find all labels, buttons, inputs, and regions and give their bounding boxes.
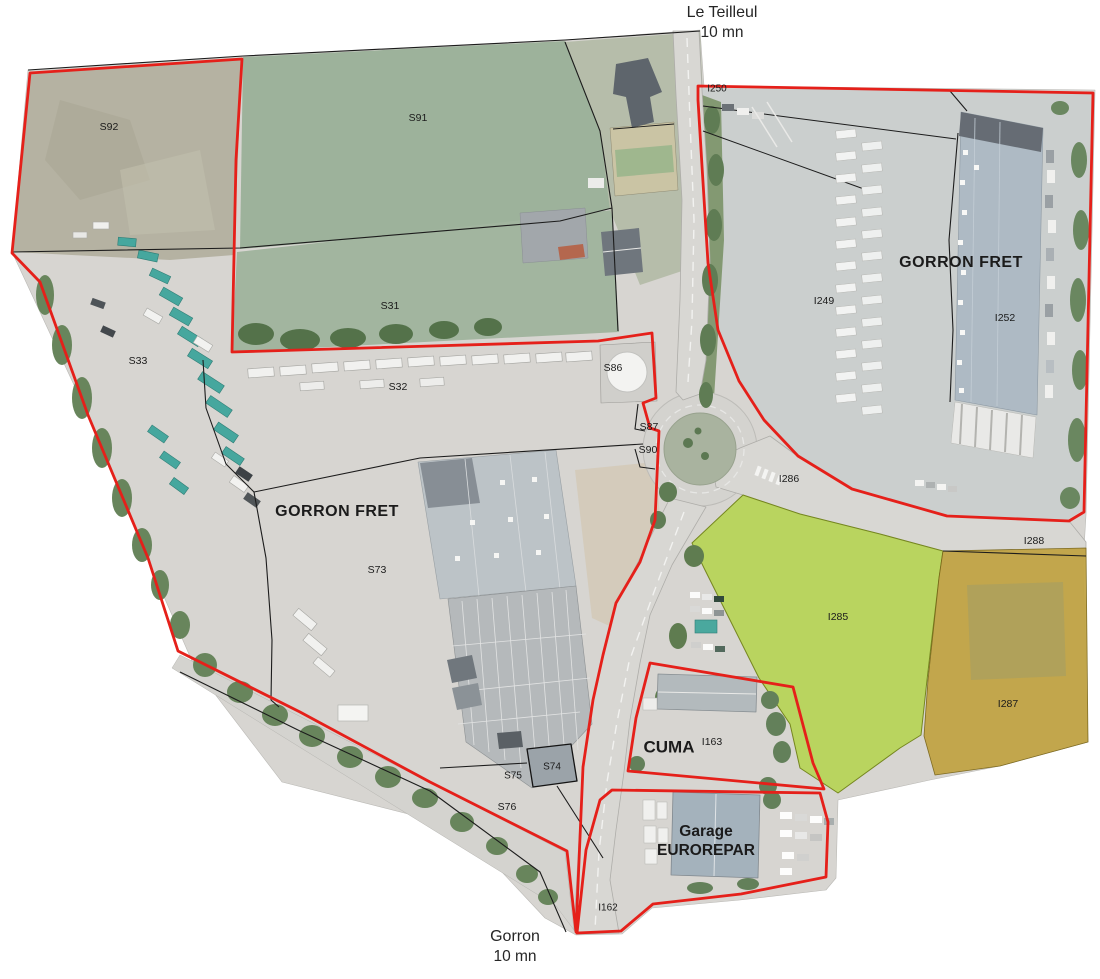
label-i162: I162	[598, 903, 618, 914]
car	[1046, 248, 1054, 261]
car	[948, 486, 957, 492]
roundabout-bush	[695, 428, 702, 435]
car	[795, 814, 807, 821]
label-s76: S76	[498, 801, 517, 813]
direction-label-bottom: Gorron 10 mn	[490, 926, 540, 968]
label-s91: S91	[409, 112, 428, 124]
car	[782, 852, 794, 859]
label-garage-line2: EUROREPAR	[657, 842, 755, 859]
label-gorron-fret-left: GORRON FRET	[275, 503, 399, 520]
rooflight	[500, 480, 505, 485]
shed-teal	[695, 620, 717, 633]
truck	[657, 802, 667, 819]
tree	[1071, 142, 1087, 178]
aerial-site-plan: S92S91S31S33S32S86S87S90GORRON FRETS73S7…	[0, 0, 1100, 979]
annex-shed	[447, 655, 477, 683]
car	[780, 868, 792, 875]
warehouse-left-dark-corner	[420, 458, 480, 508]
tree	[429, 321, 459, 339]
truck	[644, 826, 656, 843]
tree	[375, 766, 401, 788]
direction-bottom-name: Gorron	[490, 926, 540, 947]
label-i249: I249	[814, 295, 835, 307]
car	[1045, 304, 1053, 317]
car	[1047, 332, 1055, 345]
rooflight	[455, 556, 460, 561]
tree	[761, 691, 779, 709]
roundabout-bush	[683, 438, 693, 448]
tree	[474, 318, 502, 336]
tree	[706, 209, 722, 241]
car	[691, 642, 701, 648]
tree	[699, 382, 713, 408]
truck	[360, 379, 384, 389]
tree	[379, 324, 413, 344]
rooflight	[974, 165, 979, 170]
farm-white-building	[588, 178, 604, 188]
label-s73: S73	[368, 564, 387, 576]
tree	[684, 545, 704, 567]
car	[937, 484, 946, 490]
truck	[504, 353, 531, 364]
tree	[1073, 210, 1089, 250]
tree	[773, 741, 791, 763]
label-s86: S86	[604, 362, 623, 374]
rooflight	[963, 150, 968, 155]
car	[1047, 276, 1055, 289]
car	[780, 830, 792, 837]
car	[1046, 150, 1054, 163]
rooflight	[962, 210, 967, 215]
tree	[700, 324, 716, 356]
label-s92: S92	[100, 121, 119, 133]
rooflight	[494, 553, 499, 558]
car	[703, 644, 713, 650]
car	[714, 596, 724, 602]
rooflight	[959, 388, 964, 393]
car	[810, 834, 822, 841]
parcel-i287-inner-square	[967, 582, 1066, 680]
tree	[704, 106, 720, 134]
truck	[440, 355, 467, 366]
rooflight	[470, 520, 475, 525]
car	[797, 854, 809, 861]
car	[780, 812, 792, 819]
truck	[300, 381, 324, 391]
truck	[408, 356, 435, 367]
rooflight	[957, 360, 962, 365]
rooflight	[960, 330, 965, 335]
cuma-annex	[643, 698, 657, 710]
label-garage-line1: Garage	[679, 823, 733, 840]
label-i285: I285	[828, 611, 849, 623]
tree	[238, 323, 274, 345]
rooflight	[544, 514, 549, 519]
tree	[330, 328, 366, 348]
roundabout-island	[664, 413, 736, 485]
label-s32: S32	[389, 381, 408, 393]
tree	[659, 482, 677, 502]
direction-bottom-time: 10 mn	[490, 947, 540, 967]
truck	[312, 362, 339, 373]
truck	[658, 828, 668, 843]
tree	[1060, 487, 1080, 509]
yard-tent	[338, 705, 368, 721]
site-map: S92S91S31S33S32S86S87S90GORRON FRETS73S7…	[0, 0, 1100, 979]
truck	[420, 377, 444, 387]
car	[1047, 170, 1055, 183]
car	[702, 594, 712, 600]
direction-top-name: Le Teilleul	[687, 2, 758, 23]
label-i286: I286	[779, 473, 800, 485]
container-white	[73, 232, 87, 238]
car	[715, 646, 725, 652]
container	[722, 104, 734, 111]
label-s87: S87	[640, 421, 659, 433]
tree	[629, 756, 645, 772]
rooflight	[960, 180, 965, 185]
tree	[412, 788, 438, 808]
rooflight	[508, 517, 513, 522]
tree	[766, 712, 786, 736]
label-cuma: CUMA	[644, 737, 695, 756]
label-i287: I287	[998, 698, 1019, 710]
car	[926, 482, 935, 488]
tree	[1070, 278, 1086, 322]
rooflight	[532, 477, 537, 482]
tree	[1051, 101, 1069, 115]
container	[737, 108, 749, 115]
truck	[472, 354, 499, 365]
label-i288: I288	[1024, 535, 1045, 547]
tree	[280, 329, 320, 351]
roundabout-bush	[701, 452, 709, 460]
label-s75: S75	[504, 771, 522, 782]
farm-garden-green	[615, 145, 674, 177]
car	[915, 480, 924, 486]
label-i250: I250	[707, 84, 727, 95]
truck	[248, 367, 275, 378]
annex-shed	[497, 731, 523, 749]
label-gorron-fret-right: GORRON FRET	[899, 254, 1023, 271]
truck	[536, 352, 563, 363]
truck	[344, 360, 371, 371]
label-s90: S90	[639, 444, 658, 456]
car	[1045, 385, 1053, 398]
tree	[687, 882, 713, 894]
label-s33: S33	[129, 355, 148, 367]
tree	[1068, 418, 1086, 462]
rooflight	[958, 300, 963, 305]
car	[1046, 360, 1054, 373]
car	[714, 610, 724, 616]
truck	[280, 365, 307, 376]
car	[702, 608, 712, 614]
car	[810, 816, 822, 823]
car	[1048, 220, 1056, 233]
rooflight	[536, 550, 541, 555]
car	[795, 832, 807, 839]
direction-label-top: Le Teilleul 10 mn	[687, 2, 758, 44]
truck	[376, 358, 403, 369]
label-i252: I252	[995, 312, 1016, 324]
container-teal	[118, 237, 137, 247]
car	[690, 592, 700, 598]
label-i163: I163	[702, 736, 723, 748]
tree	[669, 623, 687, 649]
direction-top-time: 10 mn	[687, 23, 758, 43]
container-white	[93, 222, 109, 229]
car	[1045, 195, 1053, 208]
tree	[227, 681, 253, 703]
label-s74: S74	[543, 762, 561, 773]
tree	[737, 878, 759, 890]
truck	[645, 849, 657, 864]
truck	[643, 800, 655, 820]
rooflight	[958, 240, 963, 245]
label-s31: S31	[381, 300, 400, 312]
car	[690, 606, 700, 612]
tree	[708, 154, 724, 186]
truck	[566, 351, 593, 362]
